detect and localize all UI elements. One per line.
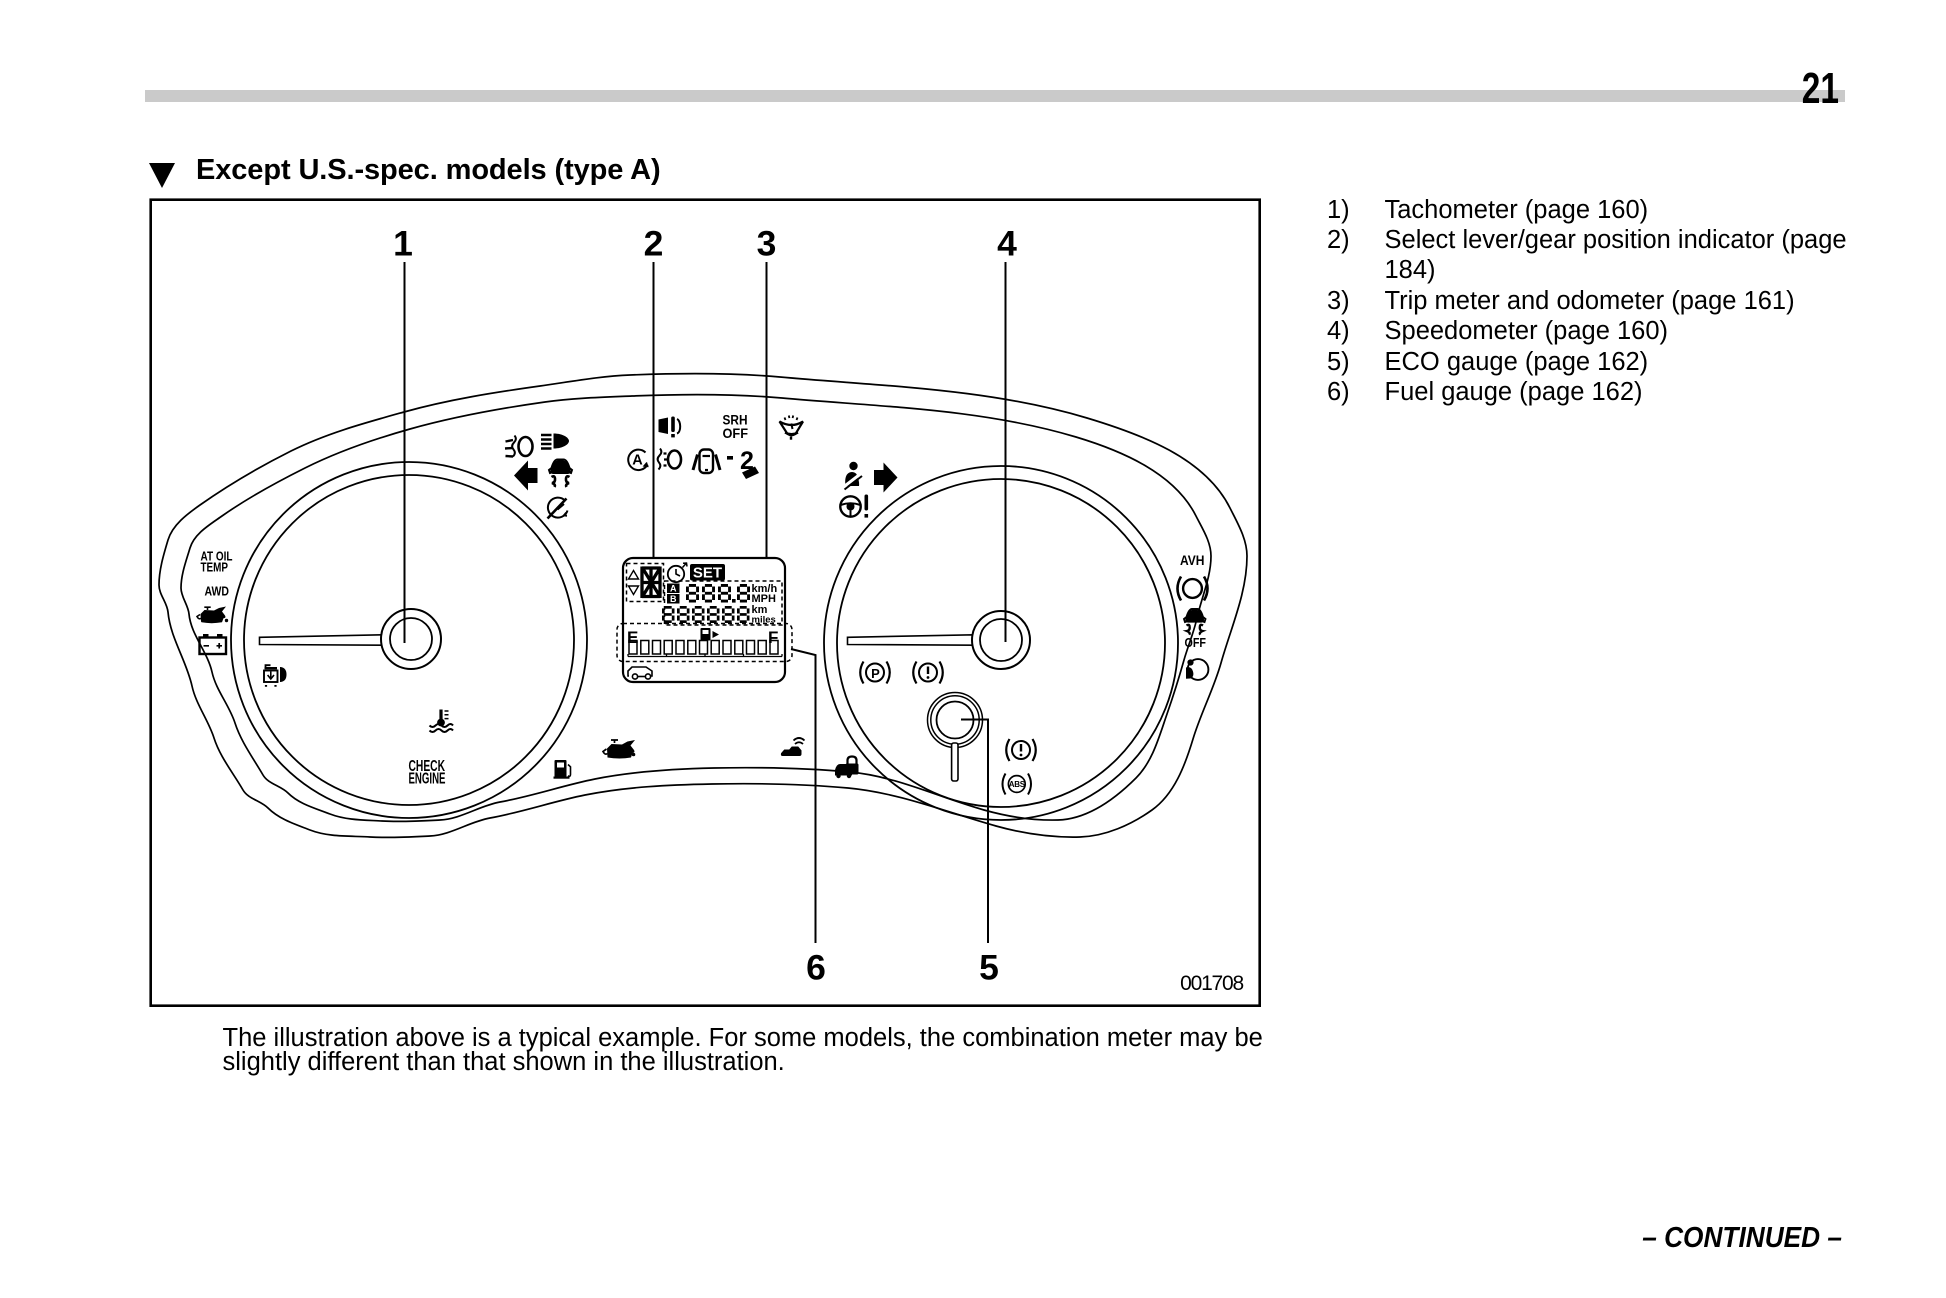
svg-text:P: P: [871, 666, 880, 681]
svg-text:AWD: AWD: [205, 585, 230, 599]
svg-text:2: 2: [644, 224, 664, 264]
svg-text:4: 4: [997, 224, 1017, 264]
svg-text:OFF: OFF: [723, 426, 749, 441]
svg-text:TEMP: TEMP: [201, 561, 229, 575]
svg-text:1: 1: [393, 224, 413, 264]
svg-text:6: 6: [806, 948, 826, 988]
svg-text:001708: 001708: [1180, 972, 1243, 995]
svg-text:3: 3: [757, 224, 777, 264]
svg-text:SET: SET: [693, 565, 722, 582]
svg-text:OFF: OFF: [1185, 635, 1207, 650]
svg-text:ABS: ABS: [1009, 780, 1026, 789]
svg-text:5: 5: [979, 948, 999, 988]
svg-text:AVH: AVH: [1180, 552, 1205, 568]
svg-text:ENGINE: ENGINE: [409, 770, 446, 787]
svg-text:B: B: [670, 594, 677, 604]
svg-text:A: A: [670, 584, 677, 594]
svg-text:A: A: [632, 453, 643, 469]
